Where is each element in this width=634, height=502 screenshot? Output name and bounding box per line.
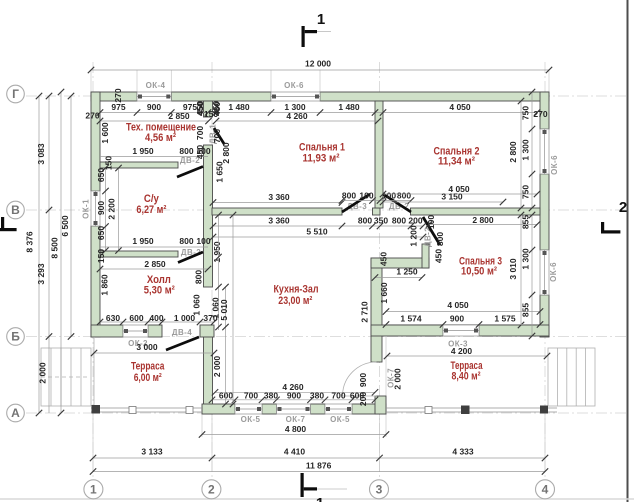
svg-text:600: 600	[129, 313, 143, 323]
svg-text:350: 350	[374, 216, 388, 226]
svg-text:380: 380	[310, 390, 324, 400]
svg-text:100: 100	[359, 190, 373, 200]
svg-text:1 200: 1 200	[409, 225, 419, 247]
svg-text:1 480: 1 480	[338, 102, 360, 112]
svg-text:100: 100	[426, 215, 436, 229]
svg-text:1 860: 1 860	[100, 274, 110, 296]
svg-text:5,30 м²: 5,30 м²	[144, 285, 175, 297]
svg-text:800: 800	[179, 236, 193, 246]
svg-text:900: 900	[450, 314, 464, 324]
svg-text:700: 700	[195, 126, 205, 140]
svg-text:800: 800	[435, 232, 445, 246]
svg-text:1 480: 1 480	[228, 102, 250, 112]
svg-text:900: 900	[147, 102, 161, 112]
svg-text:2 800: 2 800	[508, 141, 518, 163]
svg-text:800: 800	[397, 190, 411, 200]
svg-text:2 000: 2 000	[212, 356, 222, 378]
svg-text:855: 855	[521, 303, 531, 317]
svg-text:100: 100	[382, 190, 396, 200]
svg-text:3: 3	[376, 482, 383, 496]
svg-text:150: 150	[104, 156, 114, 170]
svg-text:1 574: 1 574	[400, 314, 422, 324]
svg-text:11,93 м²: 11,93 м²	[303, 153, 340, 165]
svg-text:4: 4	[542, 482, 549, 496]
svg-text:4 410: 4 410	[284, 447, 306, 457]
svg-text:2 800: 2 800	[472, 215, 494, 225]
svg-text:8 500: 8 500	[50, 237, 60, 259]
svg-text:А: А	[11, 406, 20, 420]
svg-text:3 360: 3 360	[268, 192, 290, 202]
svg-text:380: 380	[264, 390, 278, 400]
svg-text:450: 450	[195, 145, 205, 159]
svg-text:400: 400	[149, 313, 163, 323]
svg-text:200: 200	[358, 392, 368, 406]
svg-text:750: 750	[521, 185, 531, 199]
svg-text:270: 270	[533, 109, 547, 119]
svg-text:6,00 м²: 6,00 м²	[134, 372, 162, 384]
svg-text:6,27 м²: 6,27 м²	[136, 204, 166, 216]
svg-text:3 360: 3 360	[268, 216, 290, 226]
svg-text:1 250: 1 250	[396, 267, 418, 277]
svg-text:3 293: 3 293	[36, 263, 46, 285]
svg-text:ОК-1: ОК-1	[82, 199, 91, 219]
svg-text:4 260: 4 260	[286, 111, 308, 121]
svg-text:650: 650	[96, 226, 106, 240]
svg-text:5 510: 5 510	[306, 227, 328, 237]
svg-text:ДВ-4: ДВ-4	[172, 328, 192, 337]
svg-text:100: 100	[196, 236, 210, 246]
svg-text:4 800: 4 800	[285, 424, 307, 434]
svg-text:750: 750	[521, 106, 531, 120]
svg-text:1 950: 1 950	[132, 236, 154, 246]
svg-text:4 333: 4 333	[452, 447, 474, 457]
svg-text:450: 450	[379, 252, 389, 266]
svg-text:ОК-4: ОК-4	[146, 81, 166, 90]
svg-text:3 010: 3 010	[508, 258, 518, 280]
svg-text:4,56 м²: 4,56 м²	[145, 132, 176, 144]
svg-text:2 200: 2 200	[107, 198, 117, 220]
svg-text:700: 700	[212, 129, 222, 143]
svg-text:1 300: 1 300	[521, 139, 531, 161]
svg-text:630: 630	[106, 313, 120, 323]
svg-text:5 010: 5 010	[219, 299, 229, 321]
svg-text:В: В	[11, 203, 20, 217]
svg-text:150: 150	[204, 109, 218, 119]
svg-text:800: 800	[179, 146, 193, 156]
svg-text:1 300: 1 300	[521, 248, 531, 270]
svg-text:2 850: 2 850	[144, 259, 166, 269]
svg-text:11,34 м²: 11,34 м²	[438, 155, 475, 167]
svg-text:150: 150	[96, 249, 106, 263]
svg-text:4 260: 4 260	[282, 382, 304, 392]
svg-text:2: 2	[208, 482, 215, 496]
svg-text:1: 1	[90, 482, 97, 496]
svg-text:ОК-7: ОК-7	[286, 415, 306, 424]
svg-text:Б: Б	[11, 330, 20, 344]
svg-text:4 200: 4 200	[451, 346, 473, 356]
svg-text:10,50 м²: 10,50 м²	[461, 266, 497, 278]
svg-text:700: 700	[331, 390, 345, 400]
svg-text:270: 270	[85, 111, 99, 121]
svg-text:Кухня-Зал: Кухня-Зал	[274, 283, 319, 295]
svg-text:800: 800	[392, 216, 406, 226]
svg-text:3 083: 3 083	[36, 143, 46, 165]
svg-text:Г: Г	[12, 87, 19, 101]
svg-text:200: 200	[408, 216, 422, 226]
svg-text:8 376: 8 376	[25, 231, 35, 253]
svg-text:3 133: 3 133	[141, 447, 163, 457]
svg-text:1 600: 1 600	[100, 122, 110, 144]
svg-text:1: 1	[316, 495, 324, 502]
svg-text:23,00 м²: 23,00 м²	[278, 295, 312, 307]
svg-text:1 950: 1 950	[132, 146, 154, 156]
svg-text:11 876: 11 876	[306, 461, 332, 471]
svg-text:855: 855	[521, 215, 531, 229]
svg-text:600: 600	[219, 390, 233, 400]
svg-text:ОК-5: ОК-5	[241, 415, 261, 424]
svg-text:700: 700	[244, 390, 258, 400]
svg-text:900: 900	[358, 373, 368, 387]
svg-text:ОК-7: ОК-7	[387, 368, 396, 388]
svg-text:4 050: 4 050	[447, 300, 469, 310]
svg-text:3 000: 3 000	[136, 342, 158, 352]
svg-text:800: 800	[194, 270, 204, 284]
svg-text:6 500: 6 500	[60, 215, 70, 237]
svg-text:270: 270	[113, 88, 123, 102]
svg-text:1 660: 1 660	[379, 282, 389, 304]
svg-text:2 850: 2 850	[168, 111, 190, 121]
svg-text:1 060: 1 060	[192, 294, 202, 316]
svg-text:2 000: 2 000	[38, 362, 48, 384]
svg-text:12 000: 12 000	[305, 59, 331, 69]
svg-text:900: 900	[96, 201, 106, 215]
svg-text:8,40 м²: 8,40 м²	[452, 371, 481, 383]
svg-text:ОК-6: ОК-6	[549, 262, 558, 282]
svg-text:ОК-5: ОК-5	[330, 415, 350, 424]
svg-text:3 150: 3 150	[441, 192, 463, 202]
svg-text:2 800: 2 800	[221, 142, 231, 164]
svg-text:1: 1	[317, 11, 325, 28]
svg-text:4 050: 4 050	[449, 102, 471, 112]
svg-text:1 950: 1 950	[212, 241, 222, 263]
svg-text:2: 2	[619, 199, 627, 216]
svg-text:ОК-6: ОК-6	[284, 81, 304, 90]
svg-text:800: 800	[358, 216, 372, 226]
svg-text:2 710: 2 710	[360, 301, 370, 323]
svg-text:Терраса: Терраса	[131, 361, 165, 373]
svg-text:1 575: 1 575	[494, 314, 516, 324]
svg-text:450: 450	[434, 249, 444, 263]
svg-text:ОК-6: ОК-6	[550, 155, 559, 175]
